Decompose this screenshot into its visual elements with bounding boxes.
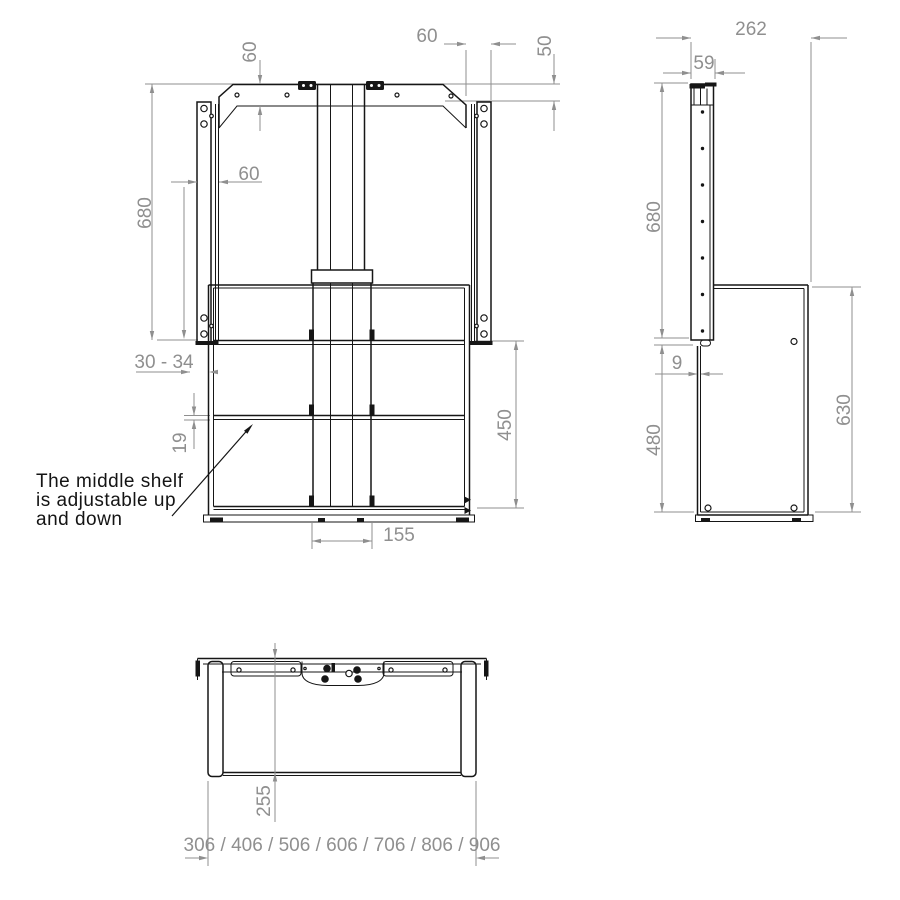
- top-front-edge: [223, 773, 461, 776]
- dim-side-lower-height: 480: [644, 424, 665, 456]
- technical-drawing-page: 680 60 60 60 50: [0, 0, 900, 900]
- dim-top-cabinet-depth: 255: [254, 785, 275, 817]
- top-back-rail: [196, 659, 489, 686]
- dim-front-plate-height: 60: [240, 41, 261, 62]
- front-cabinet: [204, 285, 475, 522]
- annotation-line-3: and down: [36, 509, 122, 530]
- dim-front-top-offset: 60: [416, 26, 437, 47]
- front-right-rail: [470, 102, 493, 345]
- middle-shelf: [214, 416, 465, 420]
- front-view: 680 60 60 60 50: [134, 26, 560, 549]
- top-legs: [208, 662, 476, 777]
- dim-front-shelf-area-height: 450: [495, 409, 516, 441]
- column-clamp-right: [366, 81, 384, 90]
- dim-front-column-width: 155: [383, 525, 415, 546]
- dim-front-column-height: 680: [135, 197, 156, 229]
- dim-front-rail-width: 60: [238, 164, 259, 185]
- annotation-line-1: The middle shelf: [36, 471, 184, 492]
- side-extension-lines: [654, 42, 861, 512]
- front-left-rail: [196, 102, 219, 345]
- top-view: 255 306 / 406 / 506 / 606 / 706 / 806 / …: [184, 643, 501, 866]
- dim-front-wall-gap: 30 - 34: [134, 352, 194, 373]
- column-clamp-left: [298, 81, 316, 90]
- top-dimensions: 255 306 / 406 / 506 / 606 / 706 / 806 / …: [184, 643, 501, 866]
- dim-front-shelf-thickness: 19: [170, 432, 191, 453]
- dim-side-panel-thickness: 9: [672, 353, 683, 374]
- annotation-middle-shelf: The middle shelf is adjustable up and do…: [36, 424, 253, 530]
- dim-side-depth: 262: [735, 19, 767, 40]
- bottom-shelf: [214, 507, 465, 510]
- motor-bracket: [302, 662, 384, 686]
- front-top-plate: [219, 81, 466, 128]
- side-dimensions: 262 59 680 480 630: [644, 19, 855, 512]
- dim-side-cabinet-height: 630: [834, 394, 855, 426]
- tv-stand-dimension-drawing: 680 60 60 60 50: [0, 0, 900, 900]
- front-column: [312, 85, 373, 507]
- dim-front-bracket-drop: 50: [535, 35, 556, 56]
- dim-top-width-options: 306 / 406 / 506 / 606 / 706 / 806 / 906: [184, 835, 501, 856]
- dim-side-column-depth: 59: [693, 53, 714, 74]
- annotation-line-2: is adjustable up: [36, 490, 176, 511]
- side-column: [690, 83, 717, 347]
- side-view: 262 59 680 480 630: [644, 19, 861, 522]
- top-shelf: [214, 341, 465, 345]
- dim-side-column-height: 680: [644, 201, 665, 233]
